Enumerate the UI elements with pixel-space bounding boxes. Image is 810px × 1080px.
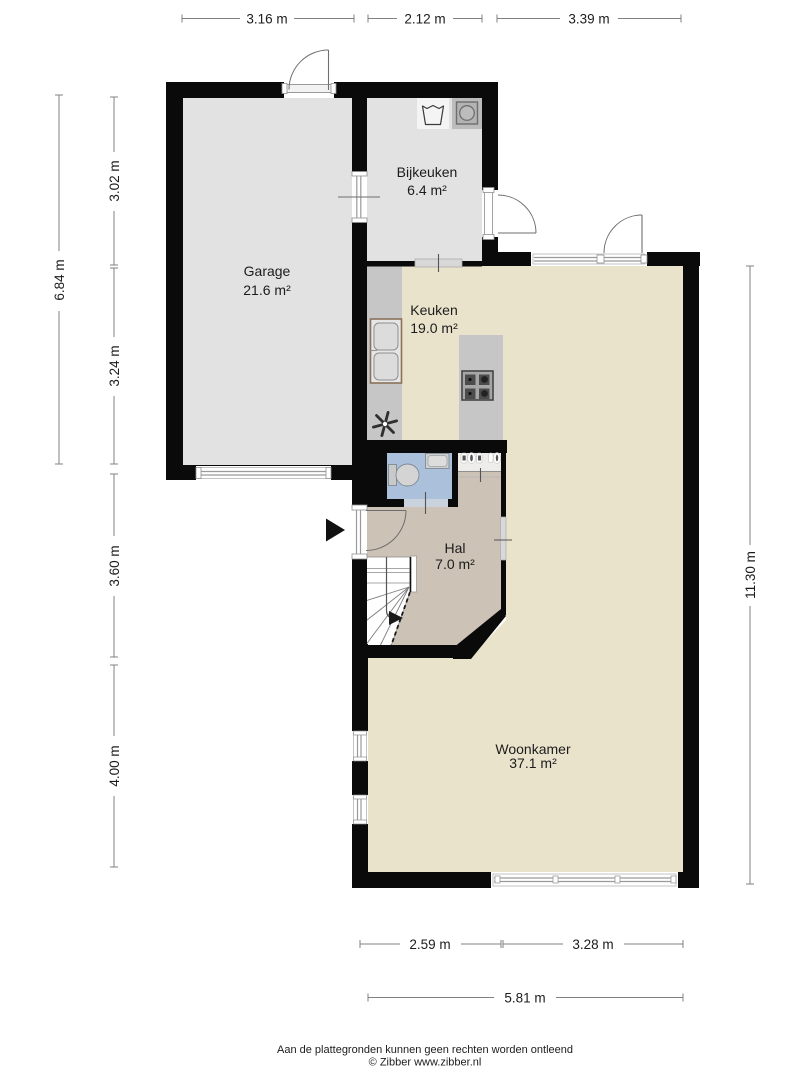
svg-text:Bijkeuken: Bijkeuken — [397, 164, 458, 180]
svg-text:11.30 m: 11.30 m — [743, 551, 758, 599]
svg-text:3.28 m: 3.28 m — [572, 937, 613, 952]
svg-text:4.00 m: 4.00 m — [107, 745, 122, 786]
svg-text:© Zibber www.zibber.nl: © Zibber www.zibber.nl — [369, 1057, 482, 1069]
svg-text:Hal: Hal — [444, 540, 465, 556]
svg-text:5.81 m: 5.81 m — [504, 990, 545, 1005]
svg-text:6.84 m: 6.84 m — [52, 259, 67, 300]
svg-text:21.6 m²: 21.6 m² — [243, 282, 291, 298]
svg-text:2.12 m: 2.12 m — [404, 12, 445, 27]
svg-text:3.24 m: 3.24 m — [107, 345, 122, 386]
svg-text:19.0 m²: 19.0 m² — [410, 320, 458, 336]
svg-text:Garage: Garage — [244, 263, 291, 279]
svg-text:3.39 m: 3.39 m — [568, 12, 609, 27]
svg-text:37.1 m²: 37.1 m² — [509, 755, 557, 771]
svg-text:6.4 m²: 6.4 m² — [407, 182, 447, 198]
svg-text:2.59 m: 2.59 m — [409, 937, 450, 952]
svg-text:Aan de plattegronden kunnen ge: Aan de plattegronden kunnen geen rechten… — [277, 1044, 573, 1056]
svg-text:3.60 m: 3.60 m — [107, 545, 122, 586]
svg-text:3.02 m: 3.02 m — [107, 160, 122, 201]
svg-text:7.0 m²: 7.0 m² — [435, 556, 475, 572]
svg-text:Keuken: Keuken — [410, 302, 457, 318]
svg-text:3.16 m: 3.16 m — [246, 12, 287, 27]
